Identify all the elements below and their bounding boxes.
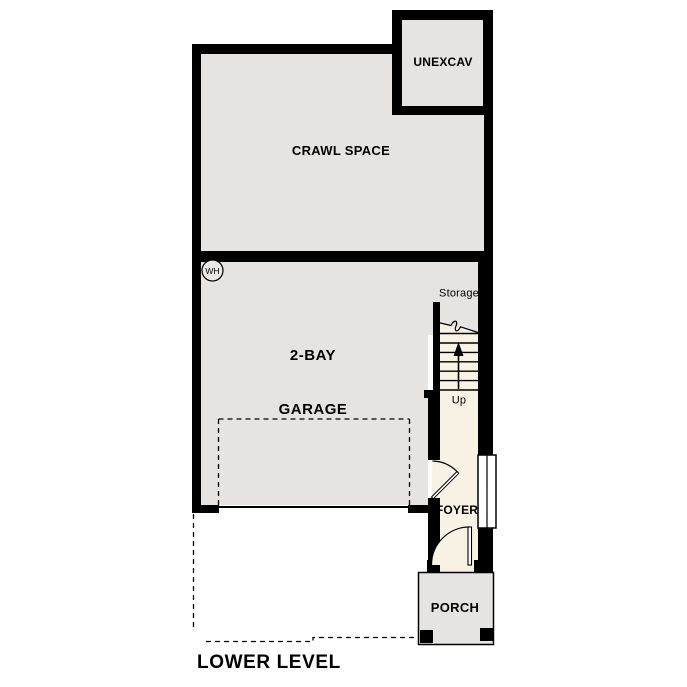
porch-label: PORCH [431, 600, 479, 616]
driveway-dashed-outline [194, 514, 419, 642]
page-title: LOWER LEVEL [197, 652, 341, 674]
porch-post-top-right [474, 560, 487, 573]
garage-label-line2: GARAGE [279, 401, 348, 419]
crawl-space-area-right [392, 115, 484, 251]
wall-garage-front-left [192, 505, 219, 513]
crawl-space-label: CRAWL SPACE [292, 143, 390, 159]
floor-plan-lower-level: UNEXCAV CRAWL SPACE 2-BAY GARAGE Storage… [0, 0, 687, 687]
porch-post-bottom-right [480, 628, 493, 641]
wall-right-upper [484, 106, 493, 262]
stairs-up-label: Up [452, 394, 466, 407]
foyer-label: FOYER [436, 503, 478, 517]
wall-left [192, 44, 201, 513]
garage-label: 2-BAY GARAGE [279, 311, 348, 455]
wall-garage-front-right [408, 505, 428, 513]
foyer-window [478, 455, 496, 528]
door-leaf [468, 527, 472, 565]
wall-stair-left [433, 302, 440, 392]
unexcav-label: UNEXCAV [413, 55, 472, 69]
water-heater-label: WH [205, 265, 219, 275]
wall-top [192, 44, 392, 54]
garage-label-line1: 2-BAY [279, 347, 348, 365]
porch-post-bottom-left [420, 630, 433, 643]
wall-crawl-bottom [192, 251, 493, 262]
wall-foyer-left-upper [428, 390, 440, 460]
garage-door-line [219, 506, 408, 508]
storage-label: Storage [439, 287, 479, 300]
